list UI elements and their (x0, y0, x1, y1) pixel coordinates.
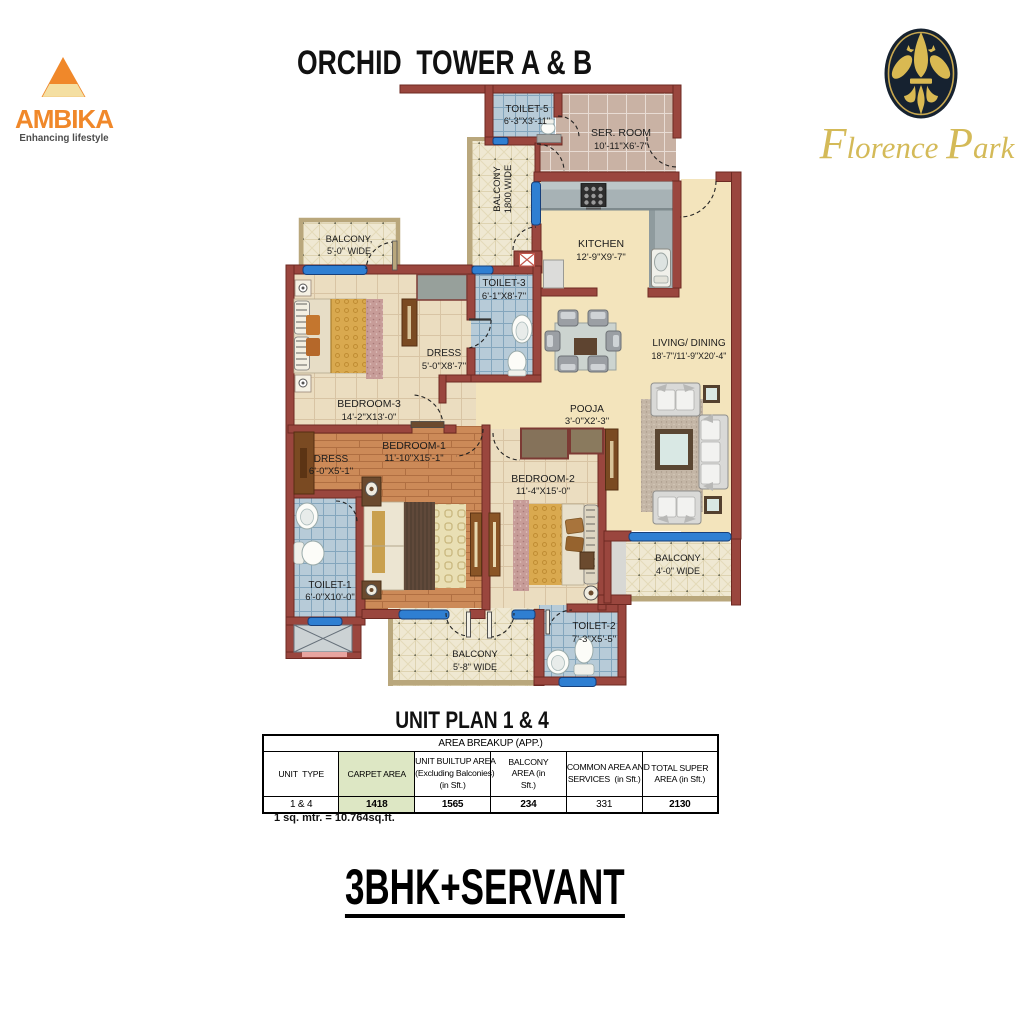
svg-text:11'-10"X15'-1": 11'-10"X15'-1" (384, 453, 443, 464)
svg-text:5'-0" WIDE: 5'-0" WIDE (327, 246, 371, 256)
svg-text:BEDROOM-3: BEDROOM-3 (337, 398, 401, 410)
svg-text:BALCONY,: BALCONY, (326, 234, 373, 245)
svg-text:DRESS: DRESS (427, 348, 462, 359)
svg-text:BEDROOM-1: BEDROOM-1 (382, 440, 446, 452)
svg-text:TOILET-3: TOILET-3 (482, 278, 526, 289)
svg-text:6'-0"X5'-1": 6'-0"X5'-1" (309, 466, 353, 477)
svg-text:14'-2"X13'-0": 14'-2"X13'-0" (342, 412, 397, 423)
svg-text:TOILET-2: TOILET-2 (572, 621, 616, 632)
svg-text:6'-0"X10'-0": 6'-0"X10'-0" (305, 592, 354, 603)
svg-text:KITCHEN: KITCHEN (578, 238, 624, 250)
svg-text:DRESS: DRESS (314, 454, 349, 465)
svg-text:TOILET-5: TOILET-5 (505, 104, 549, 115)
svg-text:11'-4"X15'-0": 11'-4"X15'-0" (516, 486, 570, 497)
svg-text:BALCONY: BALCONY (655, 553, 701, 564)
svg-text:5'-0"X8'-7": 5'-0"X8'-7" (422, 361, 466, 372)
svg-text:10'-11"X6'-7": 10'-11"X6'-7" (594, 141, 648, 152)
svg-text:BALCONY: BALCONY (492, 166, 503, 212)
svg-text:3'-0"X2'-3": 3'-0"X2'-3" (565, 416, 609, 427)
svg-text:BALCONY: BALCONY (452, 649, 498, 660)
svg-text:1800 WIDE: 1800 WIDE (503, 165, 514, 214)
svg-text:4'-0" WIDE: 4'-0" WIDE (656, 566, 700, 576)
svg-text:POOJA: POOJA (570, 404, 604, 415)
svg-text:TOILET-1: TOILET-1 (308, 580, 352, 591)
svg-text:SER. ROOM: SER. ROOM (591, 127, 651, 139)
svg-text:LIVING/ DINING: LIVING/ DINING (652, 338, 726, 349)
svg-text:12'-9"X9'-7": 12'-9"X9'-7" (576, 252, 625, 263)
svg-text:7'-3"X5'-5": 7'-3"X5'-5" (572, 634, 616, 645)
svg-text:5'-8" WIDE: 5'-8" WIDE (453, 662, 497, 672)
svg-text:BEDROOM-2: BEDROOM-2 (511, 473, 575, 485)
svg-text:6'-1"X8'-7": 6'-1"X8'-7" (482, 291, 526, 302)
svg-text:6'-3"X3'-11": 6'-3"X3'-11" (504, 116, 550, 126)
svg-text:18'-7"/11'-9"X20'-4": 18'-7"/11'-9"X20'-4" (652, 351, 727, 361)
